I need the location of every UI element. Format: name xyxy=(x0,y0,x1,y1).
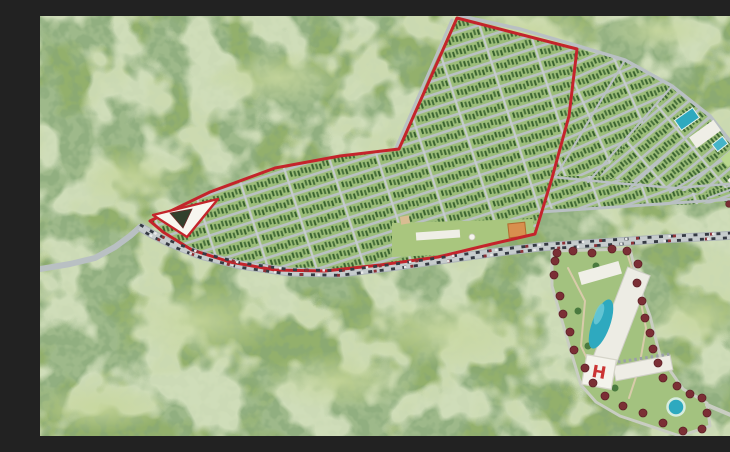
site-plan-aerial: H xyxy=(40,16,730,436)
park-small-building xyxy=(400,215,410,224)
meadow-patch xyxy=(115,283,285,359)
meadow-patch xyxy=(210,50,350,106)
meadow-patch xyxy=(75,146,185,206)
site-plan-canvas: H xyxy=(40,16,730,436)
round-pool xyxy=(668,399,685,416)
meadow-patch xyxy=(260,351,420,411)
park-gazebo xyxy=(469,234,475,240)
helipad: H xyxy=(582,355,617,390)
